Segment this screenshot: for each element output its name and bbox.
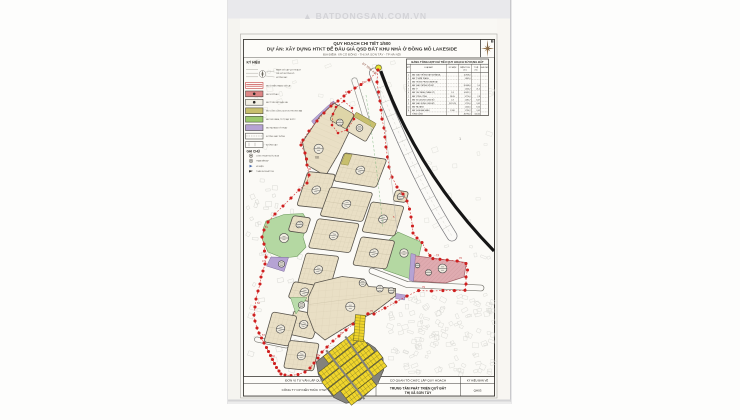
svg-text:KÝ HIỆU: KÝ HIỆU [247, 60, 261, 65]
svg-text:ĐẤT GIAO THÔNG ĐẤT NGHĨA ĐịA: ĐẤT GIAO THÔNG ĐẤT NGHĨA ĐịA [412, 73, 441, 76]
svg-text:1.862,0: 1.862,0 [465, 78, 471, 80]
svg-text:ĐƯỜNG GIAO THÔNG: ĐƯỜNG GIAO THÔNG [266, 135, 286, 138]
svg-text:3.940: 3.940 [450, 110, 454, 112]
svg-text:1,8: 1,8 [451, 92, 453, 94]
svg-text:20.068,0: 20.068,0 [464, 85, 471, 87]
svg-text:1.790,2: 1.790,2 [465, 110, 471, 112]
svg-text:(%): (%) [475, 70, 478, 72]
svg-text:CƠ QUAN TỔ CHỨC LẬP QUY HOẠCH: CƠ QUAN TỔ CHỨC LẬP QUY HOẠCH [390, 378, 446, 383]
svg-text:TRẠM BIẾN ÁP: TRẠM BIẾN ÁP [256, 160, 269, 163]
svg-text:4: 4 [408, 85, 409, 87]
svg-text:QH03: QH03 [474, 388, 482, 392]
svg-text:KÝ HIỆU: KÝ HIỆU [449, 66, 457, 69]
svg-text:LOẠI ĐẤT: LOẠI ĐẤT [424, 66, 433, 69]
svg-text:1: 1 [408, 74, 409, 76]
svg-text:ĐẤT CÂY XANH (THẢM CỎ): ĐẤT CÂY XANH (THẢM CỎ) [412, 91, 435, 94]
svg-text:9: 9 [408, 103, 409, 105]
svg-text:DIỆN TÍCH: DIỆN TÍCH [460, 66, 470, 69]
svg-text:1.040,5: 1.040,5 [465, 107, 471, 109]
svg-text:1.725,0: 1.725,0 [465, 103, 471, 105]
svg-text:QUY HOẠCH CHI TIẾT 1/500: QUY HOẠCH CHI TIẾT 1/500 [333, 41, 391, 46]
svg-text:ĐẤT CÔNG CỘNG: ĐẤT CÔNG CỘNG [412, 95, 428, 98]
svg-text:ĐẤT Ở HIỆN TRẠNG: ĐẤT Ở HIỆN TRẠNG [412, 77, 429, 80]
svg-text:5,0: 5,0 [477, 85, 479, 87]
svg-text:▲ BATDONGSAN.COM.VN: ▲ BATDONGSAN.COM.VN [303, 11, 427, 21]
svg-text:8: 8 [408, 99, 409, 101]
svg-text:CỐNG THOÁT NƯỚC MƯA: CỐNG THOÁT NƯỚC MƯA [256, 155, 280, 158]
svg-text:HƯỚNG BẮC: HƯỚNG BẮC [276, 76, 288, 79]
svg-text:TOÀN KHỐI ĐẤT THU: TOÀN KHỐI ĐẤT THU [256, 170, 275, 173]
svg-text:68: 68 [315, 156, 319, 160]
svg-text:ĐẤT HẠ TẦNG: ĐẤT HẠ TẦNG [412, 106, 424, 109]
svg-text:ĐẤT TRỒNG PHòNG VÀNH ĐAI: ĐẤT TRỒNG PHòNG VÀNH ĐAI [412, 80, 438, 83]
svg-text:3: 3 [408, 81, 409, 83]
svg-text:5: 5 [408, 89, 409, 91]
svg-text:3,45: 3,45 [476, 110, 479, 112]
svg-text:TỔNG CỘNG: TỔNG CỘNG [412, 113, 423, 116]
svg-text:(527×25): (527×25) [449, 102, 456, 105]
svg-text:ĐẤT Ở HIỆN TRẠNG GIỮ LẠI: ĐẤT Ở HIỆN TRẠNG GIỮ LẠI [266, 84, 291, 87]
svg-text:14.091,1: 14.091,1 [464, 92, 471, 94]
svg-text:ĐẤT Ở: ĐẤT Ở [412, 88, 418, 91]
svg-text:7: 7 [408, 96, 409, 98]
svg-text:(m²): (m²) [463, 69, 467, 72]
svg-text:10: 10 [408, 107, 410, 109]
svg-text:3.770,0: 3.770,0 [465, 96, 471, 98]
svg-text:6: 6 [408, 92, 409, 94]
svg-text:ĐẤT VƯỜN AO: ĐẤT VƯỜN AO [266, 93, 279, 96]
svg-text:8,47: 8,47 [476, 99, 479, 101]
svg-text:CHỈ GIỚI ĐƯỜNG ĐỎ: CHỈ GIỚI ĐƯỜNG ĐỎ [276, 72, 295, 75]
svg-text:ĐẤT GIAO DỤNG CôNG BỘ: ĐẤT GIAO DỤNG CôNG BỘ [412, 102, 435, 105]
svg-text:ĐƯỜNG DẠO: ĐƯỜNG DẠO [266, 144, 278, 147]
svg-text:HỒ ĐIỆN: HỒ ĐIỆN [256, 165, 264, 168]
svg-text:B: B [491, 38, 494, 43]
svg-text:28,0%: 28,0% [450, 96, 455, 98]
svg-text:1.040,2: 1.040,2 [465, 89, 471, 91]
svg-text:ĐẤT VàNH ĐAI XANH: ĐẤT VàNH ĐAI XANH [412, 109, 430, 112]
svg-text:2: 2 [408, 78, 409, 80]
svg-text:ĐẤT GIAO THÔNG NỘI BỘ: ĐẤT GIAO THÔNG NỘI BỘ [412, 84, 434, 87]
svg-text:2,8: 2,8 [477, 96, 479, 98]
svg-text:ĐỊA ĐIỂM: XÃ CỔ ĐÔNG - THỊ XÃ: ĐỊA ĐIỂM: XÃ CỔ ĐÔNG - THỊ XÃ SƠN TÂY - … [323, 51, 401, 56]
svg-text:1,8: 1,8 [451, 99, 453, 101]
svg-text:100,00: 100,00 [474, 114, 479, 116]
svg-text:8,10: 8,10 [476, 107, 479, 109]
svg-text:11: 11 [408, 110, 410, 112]
svg-text:THỊ XÃ SƠN TÂY: THỊ XÃ SƠN TÂY [405, 390, 432, 395]
svg-text:TỈ LỆ: TỈ LỆ [474, 66, 479, 69]
svg-text:GHI CHÚ: GHI CHÚ [481, 66, 490, 69]
svg-text:10.958,0: 10.958,0 [464, 74, 471, 76]
svg-text:ĐẤT VûI QUỰNG CôNG MỘ: ĐẤT VûI QUỰNG CôNG MỘ [412, 98, 435, 101]
svg-text:ĐẤT HẠ TẦNG KỸ THUẬT: ĐẤT HẠ TẦNG KỸ THUẬT [266, 127, 288, 130]
svg-text:GHI CHÚ: GHI CHÚ [247, 149, 261, 154]
svg-text:1.081,7: 1.081,7 [465, 99, 471, 101]
svg-text:3,45: 3,45 [476, 103, 479, 105]
svg-text:ĐẤT CÔNG CỘNG, DỊCH VỤ THƯƠNG: ĐẤT CÔNG CỘNG, DỊCH VỤ THƯƠNG MẠI [266, 110, 303, 113]
svg-text:ĐẤT CÂY XANH, TDTT, MẶT NƯỚC: ĐẤT CÂY XANH, TDTT, MẶT NƯỚC [266, 118, 296, 121]
svg-text:48.790,0: 48.790,0 [464, 114, 471, 116]
svg-text:TRUNG TÂM PHÁT TRIỂN QUỸ ĐẤT: TRUNG TÂM PHÁT TRIỂN QUỸ ĐẤT [390, 385, 446, 390]
svg-text:21,2: 21,2 [476, 89, 479, 91]
svg-text:ĐẤT Ở XÂY MỚI ĐẤU GIÁ: ĐẤT Ở XÂY MỚI ĐẤU GIÁ [266, 101, 288, 104]
svg-text:RANH GIỚI LẬP QUY HOẠCH: RANH GIỚI LẬP QUY HOẠCH [276, 69, 301, 72]
